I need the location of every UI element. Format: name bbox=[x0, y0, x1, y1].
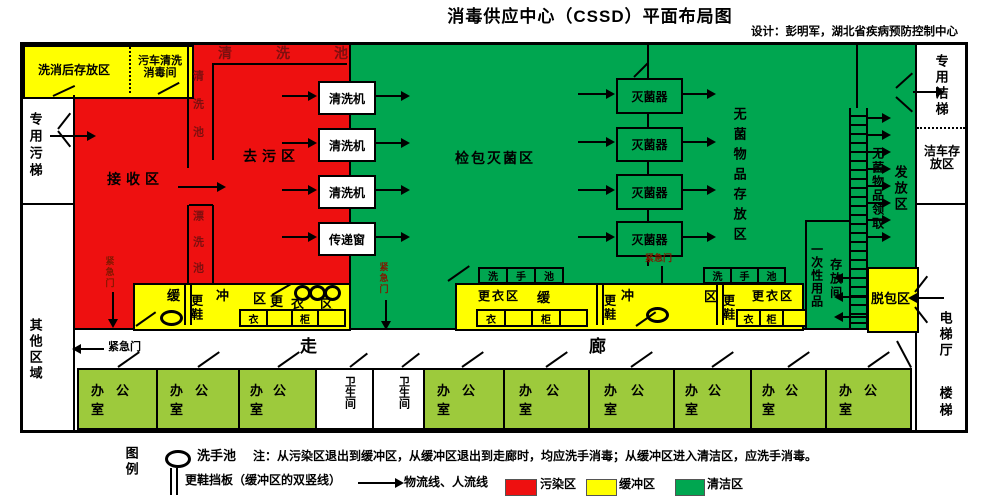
legend-flow-label: 物流线、人流线 bbox=[404, 476, 488, 489]
cssd-floor-plan: 消毒供应中心（CSSD）平面布局图 设计：彭明军，湖北省疾病预防控制中心 专用污… bbox=[0, 0, 990, 500]
receiving-area-label: 接收区 bbox=[107, 172, 164, 187]
office6-door bbox=[630, 351, 652, 368]
office-room-1: 办公室 bbox=[77, 368, 158, 430]
sterilizer1-out-arrow bbox=[681, 93, 708, 95]
locker-row-1: 衣 柜 bbox=[239, 309, 346, 327]
legend-hand-sink-symbol bbox=[165, 450, 191, 468]
sterilizer-box-2: 灭菌器 bbox=[616, 127, 683, 162]
dirty-elevator-label: 专用污梯 bbox=[28, 112, 42, 180]
legend-contaminated-label: 污染区 bbox=[540, 478, 576, 491]
wash-basin-oval-1 bbox=[160, 310, 183, 326]
unpacking-in-arrow bbox=[916, 297, 944, 299]
pickup-arrow-8 bbox=[868, 236, 883, 238]
pickup-arrow-5 bbox=[868, 185, 883, 187]
corridor-zou: 走 bbox=[300, 338, 317, 356]
wall-disposable-room-top bbox=[805, 220, 851, 222]
office-room-6: 办公室 bbox=[588, 368, 675, 430]
washer1-out-arrow bbox=[376, 95, 402, 97]
toilet1-door bbox=[349, 353, 368, 368]
sterilizer2-out-arrow bbox=[681, 141, 708, 143]
wall-rinse-sink-vertical bbox=[212, 205, 214, 287]
disposable-goods-label: 一次性用品 bbox=[810, 243, 823, 308]
locker-row-3: 衣 柜 bbox=[736, 309, 807, 327]
emergency-door-label-clean-left: 紧急门 bbox=[378, 262, 387, 295]
flow-arrow-elevator-to-receiving bbox=[50, 135, 88, 137]
washer-box-2: 清洗机 bbox=[318, 128, 376, 162]
legend-clean-label: 清洁区 bbox=[707, 478, 743, 491]
dirty-cart-wash-room-label: 污车清洗消毒间 bbox=[133, 56, 187, 79]
corridor-right-door bbox=[896, 341, 912, 368]
office7-door bbox=[711, 351, 733, 368]
buffer1-chong: 冲 bbox=[216, 289, 229, 303]
wall-top bbox=[20, 42, 968, 45]
buffer2-change-shoes-left: 更鞋 bbox=[603, 294, 616, 322]
buffer1-change-shoes: 更鞋 bbox=[190, 294, 203, 322]
sterilizer4-out-arrow bbox=[681, 236, 708, 238]
dirty-elevator-door-upper bbox=[57, 113, 71, 130]
emergency-arrow-middle bbox=[661, 266, 663, 284]
corridor-lang: 廊 bbox=[589, 338, 606, 356]
transfer-in-arrow bbox=[282, 236, 309, 238]
office-room-4: 办公室 bbox=[423, 368, 505, 430]
wall-receiving-divider-upper bbox=[187, 45, 189, 168]
office4-door bbox=[461, 351, 483, 368]
sterilizer-box-4: 灭菌器 bbox=[616, 221, 683, 257]
wall-receiving-divider-lower bbox=[187, 205, 189, 283]
hand-sink-table-2: 洗 手 池 bbox=[703, 267, 786, 284]
office5-door bbox=[545, 351, 567, 368]
wall-right-column bbox=[915, 42, 917, 432]
toilet2-door bbox=[401, 353, 420, 368]
sterilizer1-in-arrow bbox=[578, 93, 607, 95]
wash-basin-oval-2 bbox=[646, 307, 669, 323]
hand-sink-cell: 洗 bbox=[703, 267, 732, 284]
sterilizer3-out-arrow bbox=[681, 189, 708, 191]
other-area-label: 其他区域 bbox=[28, 318, 42, 382]
wall-wash-sink-vertical bbox=[212, 63, 214, 160]
sterilizer4-in-arrow bbox=[578, 236, 607, 238]
wall-other-area-top bbox=[20, 203, 75, 205]
washer3-in-arrow bbox=[282, 189, 309, 191]
wall-right bbox=[965, 42, 968, 433]
hand-sink-cell: 手 bbox=[730, 267, 759, 284]
office-room-3: 办公室 bbox=[238, 368, 317, 430]
washer1-in-arrow bbox=[282, 95, 309, 97]
hand-sink-cell: 池 bbox=[534, 267, 564, 284]
buffer1-huan: 缓 bbox=[167, 289, 180, 303]
sterile-storage-label: 无菌物品存放区 bbox=[732, 107, 746, 247]
decontamination-area-label: 去污区 bbox=[243, 149, 300, 164]
wall-left-column bbox=[73, 95, 75, 432]
legend-flow-arrow bbox=[358, 482, 396, 484]
clean-elevator-label: 专用洁梯 bbox=[934, 54, 948, 118]
pickup-arrow-3 bbox=[868, 151, 883, 153]
legend-note: 注：从污染区退出到缓冲区，从缓冲区退出到走廊时，均应洗手消毒；从缓冲区进入清洁区… bbox=[253, 450, 817, 463]
office3-door bbox=[277, 351, 299, 368]
office1-door bbox=[117, 351, 139, 368]
basin-ring-3 bbox=[324, 285, 341, 301]
stairs-label: 楼梯 bbox=[938, 386, 952, 420]
locker-cell bbox=[559, 309, 588, 327]
page-title: 消毒供应中心（CSSD）平面布局图 bbox=[340, 8, 840, 26]
locker-cell: 衣 bbox=[736, 309, 761, 327]
legend-hand-sink-label: 洗手池 bbox=[197, 449, 236, 463]
pickup-arrow-2 bbox=[868, 134, 883, 136]
buffer1-qu: 区 bbox=[253, 292, 266, 306]
toilet-room-2: 卫生间 bbox=[372, 368, 425, 430]
office-room-2: 办公室 bbox=[156, 368, 240, 430]
buffer1-geng: 更 bbox=[270, 295, 283, 309]
wall-cart-storage-bottom bbox=[917, 203, 965, 205]
wall-wash-sink-horizontal bbox=[212, 63, 347, 65]
wall-left bbox=[20, 42, 23, 433]
washer3-out-arrow bbox=[376, 189, 402, 191]
top-left-dotted-divider bbox=[129, 47, 131, 93]
locker-cell bbox=[782, 309, 807, 327]
hand-sink-cell: 洗 bbox=[478, 267, 508, 284]
corridor-emergency-arrow bbox=[80, 348, 104, 350]
legend-shoe-board-label: 更鞋挡板（缓冲区的双竖线） bbox=[185, 474, 341, 487]
sterilizer-box-1: 灭菌器 bbox=[616, 78, 683, 114]
legend-clean-swatch bbox=[675, 479, 705, 496]
rinse-sink-label: 漂洗池 bbox=[191, 210, 203, 288]
legend-title: 图例 bbox=[124, 446, 138, 478]
legend-contaminated-swatch bbox=[505, 479, 537, 496]
hand-sink-table-1: 洗 手 池 bbox=[478, 267, 564, 284]
sterilizer2-in-arrow bbox=[578, 141, 607, 143]
office2-door bbox=[197, 351, 219, 368]
hand-sink-cell: 手 bbox=[506, 267, 536, 284]
transfer-out-arrow bbox=[376, 236, 402, 238]
office-room-9: 办公室 bbox=[825, 368, 912, 430]
sterilizer-box-3: 灭菌器 bbox=[616, 174, 683, 210]
washer-box-1: 清洗机 bbox=[318, 81, 376, 115]
locker-cell: 衣 bbox=[239, 309, 268, 327]
locker-cell: 衣 bbox=[476, 309, 506, 327]
pickup-arrow-7 bbox=[868, 219, 883, 221]
elevator-hall-label: 电梯厅 bbox=[938, 311, 952, 359]
emergency-door-label-middle: 紧急门 bbox=[645, 254, 672, 263]
locker-cell bbox=[504, 309, 533, 327]
dispensing-area-label: 发放区 bbox=[893, 165, 907, 213]
locker-cell bbox=[317, 309, 346, 327]
buffer2-huan: 缓 bbox=[537, 291, 550, 305]
washer2-in-arrow bbox=[282, 142, 309, 144]
washer2-out-arrow bbox=[376, 142, 402, 144]
clean-elevator-dotted-divider bbox=[917, 127, 965, 129]
flow-arrow-receiving-to-decon bbox=[178, 186, 218, 188]
office-room-5: 办公室 bbox=[503, 368, 590, 430]
sterilizer3-in-arrow bbox=[578, 189, 607, 191]
designer-credit: 设计：彭明军，湖北省疾病预防控制中心 bbox=[690, 26, 958, 38]
locker-cell bbox=[266, 309, 293, 327]
pickup-arrow-1 bbox=[868, 117, 883, 119]
locker-cell: 柜 bbox=[531, 309, 561, 327]
wash-sink-top-label: 清洗池 bbox=[218, 46, 392, 61]
transfer-window-box: 传递窗 bbox=[318, 222, 376, 256]
wall-rinse-sink-cap-top bbox=[189, 204, 213, 206]
pickup-arrow-4 bbox=[868, 168, 883, 170]
post-wash-storage-label: 洗消后存放区 bbox=[38, 64, 110, 77]
pickup-arrow-6 bbox=[868, 202, 883, 204]
buffer2-changing-area-2: 更衣区 bbox=[752, 290, 794, 303]
buffer2-chong: 冲 bbox=[621, 289, 634, 303]
office-room-8: 办公室 bbox=[750, 368, 827, 430]
emergency-arrow-clean-left bbox=[385, 300, 387, 322]
washer-box-3: 清洗机 bbox=[318, 175, 376, 209]
emergency-door-label-receiving: 紧急门 bbox=[104, 256, 113, 289]
office-room-7: 办公室 bbox=[673, 368, 752, 430]
legend-shoe-board-symbol bbox=[170, 468, 178, 495]
office8-door bbox=[787, 351, 809, 368]
dirty-elevator-door-lower bbox=[57, 130, 71, 147]
buffer2-change-shoes-right: 更鞋 bbox=[722, 294, 735, 322]
wall-bottom bbox=[20, 430, 968, 433]
legend-buffer-label: 缓冲区 bbox=[619, 478, 655, 491]
locker-cell: 柜 bbox=[291, 309, 319, 327]
buffer2-changing-area-1: 更衣区 bbox=[478, 290, 520, 303]
office9-door bbox=[867, 351, 889, 368]
clean-cart-storage-label: 洁车存放区 bbox=[920, 145, 964, 170]
toilet-room-1: 卫生间 bbox=[315, 368, 374, 430]
locker-row-2: 衣 柜 bbox=[476, 309, 588, 327]
inspection-packing-sterilization-label: 检包灭菌区 bbox=[455, 151, 535, 166]
wash-sink-left-label: 清洗池 bbox=[191, 70, 203, 154]
unpacking-area-label: 脱包区 bbox=[871, 292, 910, 306]
locker-cell: 柜 bbox=[759, 309, 784, 327]
legend-buffer-swatch bbox=[586, 479, 617, 496]
hand-sink-cell: 池 bbox=[757, 267, 786, 284]
wall-ladder-top bbox=[856, 45, 858, 108]
emergency-arrow-receiving bbox=[112, 292, 114, 320]
